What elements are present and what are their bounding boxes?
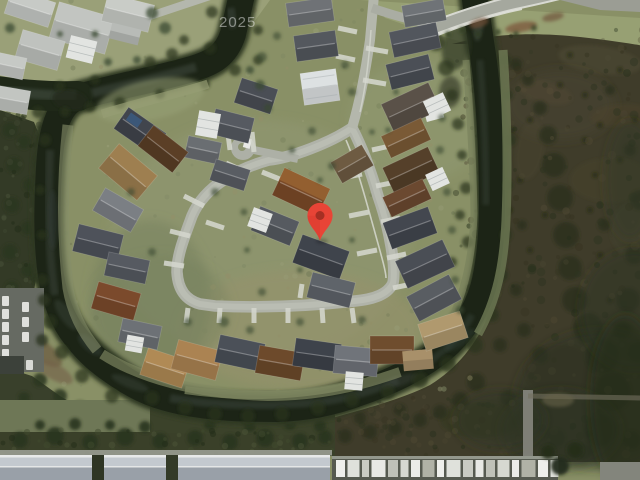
svg-text:2025: 2025 [219,14,256,31]
